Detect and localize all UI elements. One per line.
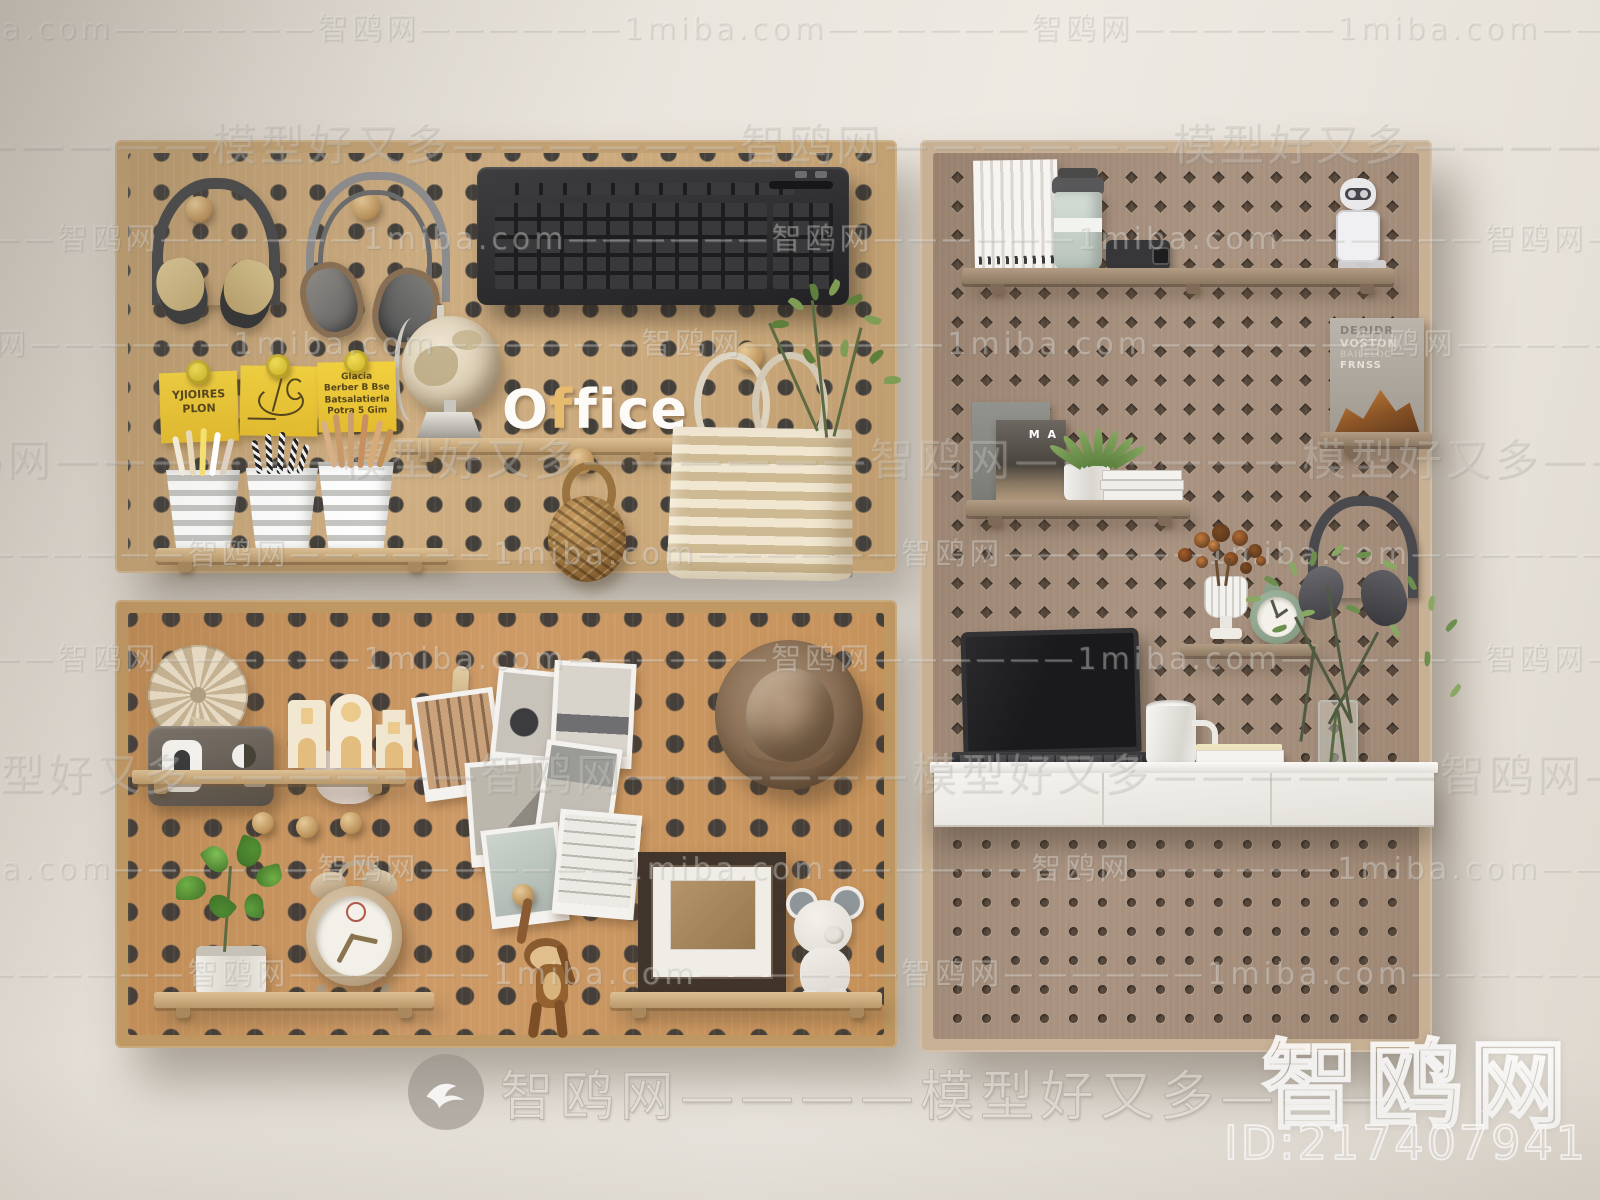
- peg-hole: [1241, 403, 1254, 416]
- sprig-leaf: [772, 320, 789, 328]
- office-sign: Office: [502, 378, 688, 441]
- peg-hole: [1185, 840, 1194, 849]
- peg-hole: [1270, 287, 1283, 300]
- shelf-bracket: [990, 284, 1004, 294]
- peg-hole: [1069, 956, 1078, 965]
- peg-hole: [951, 403, 964, 416]
- shelf-bracket: [154, 784, 168, 794]
- peg-hole: [1096, 287, 1109, 300]
- peg-hole: [951, 345, 964, 358]
- peg-hole: [1038, 577, 1051, 590]
- peg-hole: [1040, 869, 1049, 878]
- peg-hole: [953, 840, 962, 849]
- desk-top: [930, 762, 1438, 773]
- peg-hole: [1212, 432, 1225, 445]
- peg-hole: [1299, 519, 1312, 532]
- peg-hole: [1299, 200, 1312, 213]
- peg-hole: [1125, 316, 1138, 329]
- house-round-window: [341, 702, 361, 722]
- peg-hole: [982, 840, 991, 849]
- plant-pot: [196, 946, 266, 998]
- peg-hole: [1241, 171, 1254, 184]
- peg-hole: [1330, 985, 1339, 994]
- peg-hole: [982, 927, 991, 936]
- globe-stem: [444, 400, 456, 414]
- shelf-bracket: [1360, 284, 1374, 294]
- peg-hole: [1038, 606, 1051, 619]
- peg-hole: [1185, 898, 1194, 907]
- peg-hole: [1270, 316, 1283, 329]
- peg-hole: [1299, 171, 1312, 184]
- peg-hole: [1241, 722, 1254, 735]
- peg-hole: [1301, 840, 1310, 849]
- robot-goggle-right: [1360, 190, 1368, 198]
- peg-hole: [980, 606, 993, 619]
- bear-head: [794, 900, 852, 954]
- keyboard-volume-slot: [769, 181, 833, 189]
- note-pin: [266, 354, 290, 378]
- shelf-bracket: [178, 562, 192, 572]
- peg-hole: [1241, 490, 1254, 503]
- shelf-right-top: [962, 268, 1394, 284]
- sprig-leaf: [884, 376, 901, 384]
- desk-drawer-unit: [934, 773, 1434, 827]
- peg-hole: [1096, 519, 1109, 532]
- peg-ball: [252, 812, 274, 834]
- peg-hole: [1067, 287, 1080, 300]
- house-door-arch: [385, 742, 403, 768]
- peg-hole: [1359, 753, 1368, 762]
- peg-hole: [1069, 927, 1078, 936]
- peg-hole: [1388, 956, 1397, 965]
- peg-hole: [1067, 403, 1080, 416]
- shelf-bracket: [176, 1008, 190, 1018]
- shelf-bracket: [640, 452, 654, 462]
- peg-hole: [1270, 490, 1283, 503]
- laptop-screen: [960, 628, 1141, 757]
- shelf-office: [396, 438, 686, 452]
- dried-flower: [1256, 556, 1266, 566]
- peg-hole: [1038, 345, 1051, 358]
- peg-hole: [1270, 693, 1283, 706]
- shelf-bracket: [408, 562, 422, 572]
- keyboard-function-row: [495, 183, 795, 195]
- peg-hole: [1185, 956, 1194, 965]
- peg-hole: [1243, 927, 1252, 936]
- shelf-bracket: [398, 1008, 412, 1018]
- peg-hole: [1388, 840, 1397, 849]
- peg-hole: [1156, 840, 1165, 849]
- shelf-figurines: [132, 770, 406, 784]
- peg-hole: [980, 316, 993, 329]
- peg-hole: [1214, 869, 1223, 878]
- peg-hole: [951, 374, 964, 387]
- shelf-bracket: [1344, 446, 1358, 456]
- peg-hole: [953, 956, 962, 965]
- peg-hole: [1069, 898, 1078, 907]
- watermark-image-id: ID:217407941: [1224, 1116, 1588, 1170]
- peg-hole: [1156, 956, 1165, 965]
- peg-hole: [980, 374, 993, 387]
- keyboard-main-keys: [495, 203, 767, 289]
- peg-hole: [1183, 519, 1196, 532]
- peg-hole: [1127, 985, 1136, 994]
- peg-hole: [1330, 898, 1339, 907]
- glass-vase-waterline: [1322, 740, 1350, 742]
- rope-knot-ball: [548, 496, 626, 582]
- peg-hole: [1359, 927, 1368, 936]
- peg-hole: [1154, 287, 1167, 300]
- peg-hole: [1270, 461, 1283, 474]
- peg-hole: [1270, 722, 1283, 735]
- tumbler-lid-top: [1058, 168, 1098, 178]
- peg-hole: [1154, 606, 1167, 619]
- peg-hole: [1154, 316, 1167, 329]
- office-sign-rest: fice: [573, 378, 688, 441]
- peg-hole: [1299, 345, 1312, 358]
- peg-hole: [1098, 985, 1107, 994]
- peg-hole: [1386, 200, 1399, 213]
- peg-hole: [1156, 898, 1165, 907]
- rope-texture: [548, 496, 626, 582]
- peg-hole: [1154, 403, 1167, 416]
- peg-hole: [1212, 693, 1225, 706]
- peg-hole: [1183, 229, 1196, 242]
- peg-hole: [1011, 898, 1020, 907]
- drawer-seam: [1102, 773, 1104, 827]
- peg-hole: [1009, 316, 1022, 329]
- peg-hole: [1098, 898, 1107, 907]
- peg-hole: [1301, 927, 1310, 936]
- peg-hole: [1214, 1014, 1223, 1023]
- peg-hole: [1214, 956, 1223, 965]
- peg-hole: [980, 345, 993, 358]
- peg-hole: [1272, 869, 1281, 878]
- peg-hole: [1185, 1014, 1194, 1023]
- peg-hole: [1038, 316, 1051, 329]
- peg-hole: [1098, 840, 1107, 849]
- picture-frame: [638, 852, 786, 992]
- branch-leaf: [1444, 618, 1459, 633]
- peg-ball: [340, 812, 362, 834]
- art-book-title-3: BAILELOC: [1330, 350, 1424, 360]
- peg-hole: [1299, 490, 1312, 503]
- peg-hole: [953, 1014, 962, 1023]
- peg-hole: [1011, 840, 1020, 849]
- peg-hole: [1299, 374, 1312, 387]
- scene-stage: Office YJlOIRES PLON Glacia Berber B Bse…: [0, 0, 1600, 1200]
- office-sign-o: O: [502, 378, 549, 441]
- peg-hole: [1125, 403, 1138, 416]
- peg-hole: [951, 287, 964, 300]
- peg-hole: [1328, 461, 1341, 474]
- branch-leaf: [1246, 596, 1261, 602]
- peg-hole: [1009, 345, 1022, 358]
- plant-leaf: [176, 876, 206, 900]
- peg-hole: [1069, 1014, 1078, 1023]
- peg-ball: [296, 816, 318, 838]
- peg-hole: [1270, 200, 1283, 213]
- shelf-right-clock: [1180, 644, 1318, 656]
- peg-hole: [1357, 722, 1370, 735]
- peg-hole: [1241, 432, 1254, 445]
- peg-hole: [982, 956, 991, 965]
- dried-flower: [1178, 548, 1192, 562]
- peg-hole: [1156, 927, 1165, 936]
- peg-hole: [1301, 898, 1310, 907]
- peg-hole: [1359, 956, 1368, 965]
- peg-hole: [1301, 753, 1310, 762]
- magazine-stack: [973, 159, 1059, 270]
- peg-hole: [1386, 229, 1399, 242]
- peg-hole: [1212, 171, 1225, 184]
- peg-hole: [1212, 374, 1225, 387]
- speaker-lens: [1152, 247, 1170, 265]
- peg-hole: [1214, 898, 1223, 907]
- sticky-note-1-text2: PLON: [160, 400, 238, 416]
- peg-hole: [951, 548, 964, 561]
- peg-hole: [1009, 519, 1022, 532]
- peg-hole: [953, 985, 962, 994]
- peg-hole: [1359, 898, 1368, 907]
- house-door-arch: [341, 736, 361, 768]
- peg-hole: [1183, 171, 1196, 184]
- peg-hole: [1301, 956, 1310, 965]
- keyboard: [477, 167, 849, 305]
- peg-hole: [1009, 577, 1022, 590]
- peg-hole: [1183, 461, 1196, 474]
- peg-hole: [982, 869, 991, 878]
- dried-flower: [1208, 540, 1220, 552]
- peg-hole: [1270, 171, 1283, 184]
- peg-hole: [1243, 898, 1252, 907]
- alarm-clock-body: [306, 886, 402, 986]
- book-dark-cover: M A: [996, 420, 1066, 502]
- peg-hole: [1154, 171, 1167, 184]
- peg-hole: [1040, 985, 1049, 994]
- peg-hole: [1241, 461, 1254, 474]
- house-window: [388, 722, 400, 734]
- peg-hole: [980, 548, 993, 561]
- plant-pot-rim: [196, 946, 266, 956]
- art-book-mountain-art: [1334, 380, 1420, 434]
- peg-hole: [1299, 432, 1312, 445]
- peg-hole: [1243, 1014, 1252, 1023]
- peg-hole: [1156, 985, 1165, 994]
- shelf-bracket: [420, 452, 434, 462]
- monkey-belly: [543, 972, 561, 1000]
- peg-hole: [951, 316, 964, 329]
- peg-hole: [1009, 548, 1022, 561]
- magazine-spine-marks: [979, 255, 1055, 264]
- art-book-title-4: FRNSS: [1330, 360, 1424, 371]
- peg-hole: [1272, 927, 1281, 936]
- peg-hole: [1127, 956, 1136, 965]
- peg-hole: [1096, 577, 1109, 590]
- peg-hole: [1038, 374, 1051, 387]
- ornate-vase-foot: [1210, 628, 1242, 639]
- peg-hole: [1098, 1014, 1107, 1023]
- globe-landmass: [452, 330, 482, 350]
- peg-hole: [1156, 1014, 1165, 1023]
- peg-hole: [1357, 693, 1370, 706]
- peg-hole: [1009, 374, 1022, 387]
- house-cutout-2: [330, 694, 372, 768]
- peg-hole: [1067, 374, 1080, 387]
- peg-hole: [1154, 664, 1167, 677]
- peg-hole: [1272, 985, 1281, 994]
- peg-hole: [1067, 606, 1080, 619]
- peg-hole: [1040, 956, 1049, 965]
- peg-hole: [1214, 985, 1223, 994]
- peg-hole: [1067, 577, 1080, 590]
- peg-hole: [1183, 316, 1196, 329]
- peg-hole: [1214, 927, 1223, 936]
- peg-hole: [1183, 200, 1196, 213]
- peg-hole: [1212, 316, 1225, 329]
- peg-hole: [1098, 956, 1107, 965]
- peg-hole: [1212, 403, 1225, 416]
- peg-hole: [1096, 403, 1109, 416]
- globe-base: [416, 412, 482, 440]
- peg-hole: [951, 490, 964, 503]
- peg-hole: [1125, 548, 1138, 561]
- peg-hole: [1154, 345, 1167, 358]
- robot-figurine-head: [1340, 178, 1376, 210]
- peg-hole: [1040, 1014, 1049, 1023]
- peg-hole: [1125, 374, 1138, 387]
- peg-hole: [1156, 869, 1165, 878]
- peg-hole: [953, 898, 962, 907]
- peg-hole: [1386, 287, 1399, 300]
- peg-hole: [1154, 374, 1167, 387]
- peg-hole: [1154, 577, 1167, 590]
- peg-hole: [1243, 840, 1252, 849]
- sticky-note-3-text4: Potra 5 Gim: [318, 405, 396, 418]
- peg-hole: [1009, 287, 1022, 300]
- frame-artwork: [670, 880, 756, 950]
- pencil-cup-3: [318, 462, 394, 550]
- peg-hole: [1386, 461, 1399, 474]
- shelf-bracket: [1186, 284, 1200, 294]
- shelf-bracket: [988, 516, 1002, 526]
- peg-hole: [1185, 985, 1194, 994]
- peg-hole: [951, 577, 964, 590]
- seagull-logo-icon: [408, 1054, 484, 1130]
- peg-hole: [1067, 316, 1080, 329]
- peg-hole: [951, 606, 964, 619]
- tumbler-band: [1054, 218, 1102, 232]
- peg-hole: [1011, 956, 1020, 965]
- shelf-frame-bear: [610, 992, 882, 1008]
- peg-hole: [1154, 200, 1167, 213]
- peg-hole: [1125, 200, 1138, 213]
- peg-hole: [1185, 927, 1194, 936]
- shelf-right-book: [1320, 432, 1432, 446]
- fedora-hat-band: [744, 722, 836, 771]
- art-book-title-1: DEOIDR: [1330, 318, 1424, 337]
- peg-hole: [1096, 606, 1109, 619]
- peg-hole: [1241, 693, 1254, 706]
- peg-hole: [1270, 229, 1283, 242]
- peg-hole: [1125, 577, 1138, 590]
- laptop-keys-texture: [960, 755, 1142, 762]
- peg-hole: [1125, 171, 1138, 184]
- peg-hole: [1183, 577, 1196, 590]
- white-book-slab: [1100, 480, 1184, 490]
- peg-hole: [1183, 374, 1196, 387]
- peg-hole: [1069, 869, 1078, 878]
- sticky-note-3-text2: Berber B Bse: [318, 383, 396, 396]
- shelf-bracket: [1158, 516, 1172, 526]
- drawer-seam: [1270, 773, 1272, 827]
- house-cutout-1: [288, 700, 326, 768]
- peg-hole: [1330, 869, 1339, 878]
- shelf-bracket: [368, 784, 382, 794]
- peg-hole: [1098, 869, 1107, 878]
- peg-hole: [1359, 869, 1368, 878]
- peg-hole: [1328, 171, 1341, 184]
- peg-hole: [1270, 519, 1283, 532]
- peg-hole: [1040, 898, 1049, 907]
- peg-hole: [1243, 956, 1252, 965]
- branch-stem-in-vase: [1336, 710, 1346, 764]
- peg-hole: [1386, 722, 1399, 735]
- peg-hole: [1127, 1014, 1136, 1023]
- peg-hole: [953, 869, 962, 878]
- peg-hole: [1127, 927, 1136, 936]
- shelf-cups: [156, 548, 448, 562]
- watermark-row: 1miba.com——————智鸥网——————1miba.com——————智…: [0, 4, 1600, 48]
- peg-hole: [951, 229, 964, 242]
- keyboard-indicator-light: [795, 171, 807, 178]
- art-book: DEOIDR VOSTON BAILELOC FRNSS: [1330, 318, 1424, 434]
- peg-hole: [1359, 985, 1368, 994]
- peg-hole: [1301, 985, 1310, 994]
- peg-hole: [1270, 403, 1283, 416]
- peg-hole: [1212, 287, 1225, 300]
- photo-image: [558, 814, 637, 908]
- book-dark-title: M A: [1029, 428, 1058, 441]
- peg-hole: [1386, 664, 1399, 677]
- peg-hole: [1388, 985, 1397, 994]
- peg-hole: [1330, 840, 1339, 849]
- peg-hole: [1241, 287, 1254, 300]
- radio-knob: [232, 744, 256, 768]
- pencil: [348, 412, 354, 468]
- keyboard-numpad: [773, 203, 833, 289]
- peg-hole: [1011, 927, 1020, 936]
- peg-hole: [1241, 374, 1254, 387]
- office-sign-f-accent: f: [549, 378, 574, 441]
- peg-hole: [1212, 461, 1225, 474]
- peg-hole: [1011, 985, 1020, 994]
- tote-bag-body: [667, 426, 856, 581]
- peg-hole: [1272, 898, 1281, 907]
- peg-hole: [1212, 229, 1225, 242]
- peg-hole: [1272, 840, 1281, 849]
- note-pin: [344, 350, 368, 374]
- bear-muzzle: [824, 926, 844, 944]
- compact-speaker: [1106, 240, 1170, 270]
- laptop-screen-glare: [966, 633, 1137, 751]
- peg-hole: [1185, 869, 1194, 878]
- peg-hole: [1214, 840, 1223, 849]
- peg-hole: [1330, 927, 1339, 936]
- peg-hole: [951, 461, 964, 474]
- peg-hole: [1301, 869, 1310, 878]
- peg-hole: [1011, 1014, 1020, 1023]
